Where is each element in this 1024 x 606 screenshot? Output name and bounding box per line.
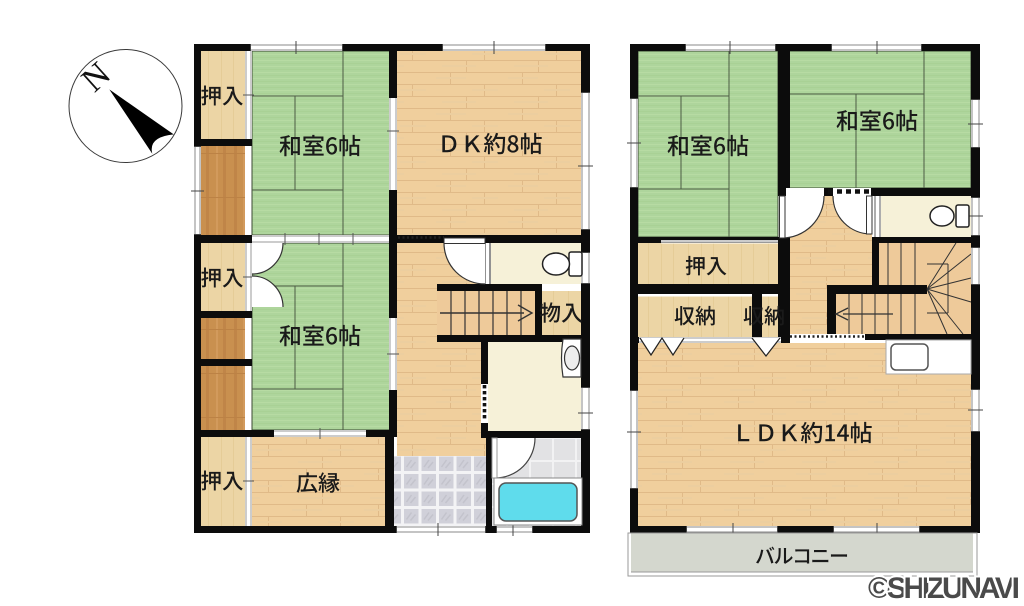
svg-text:©SHIZUNAVI: ©SHIZUNAVI — [868, 572, 1020, 605]
